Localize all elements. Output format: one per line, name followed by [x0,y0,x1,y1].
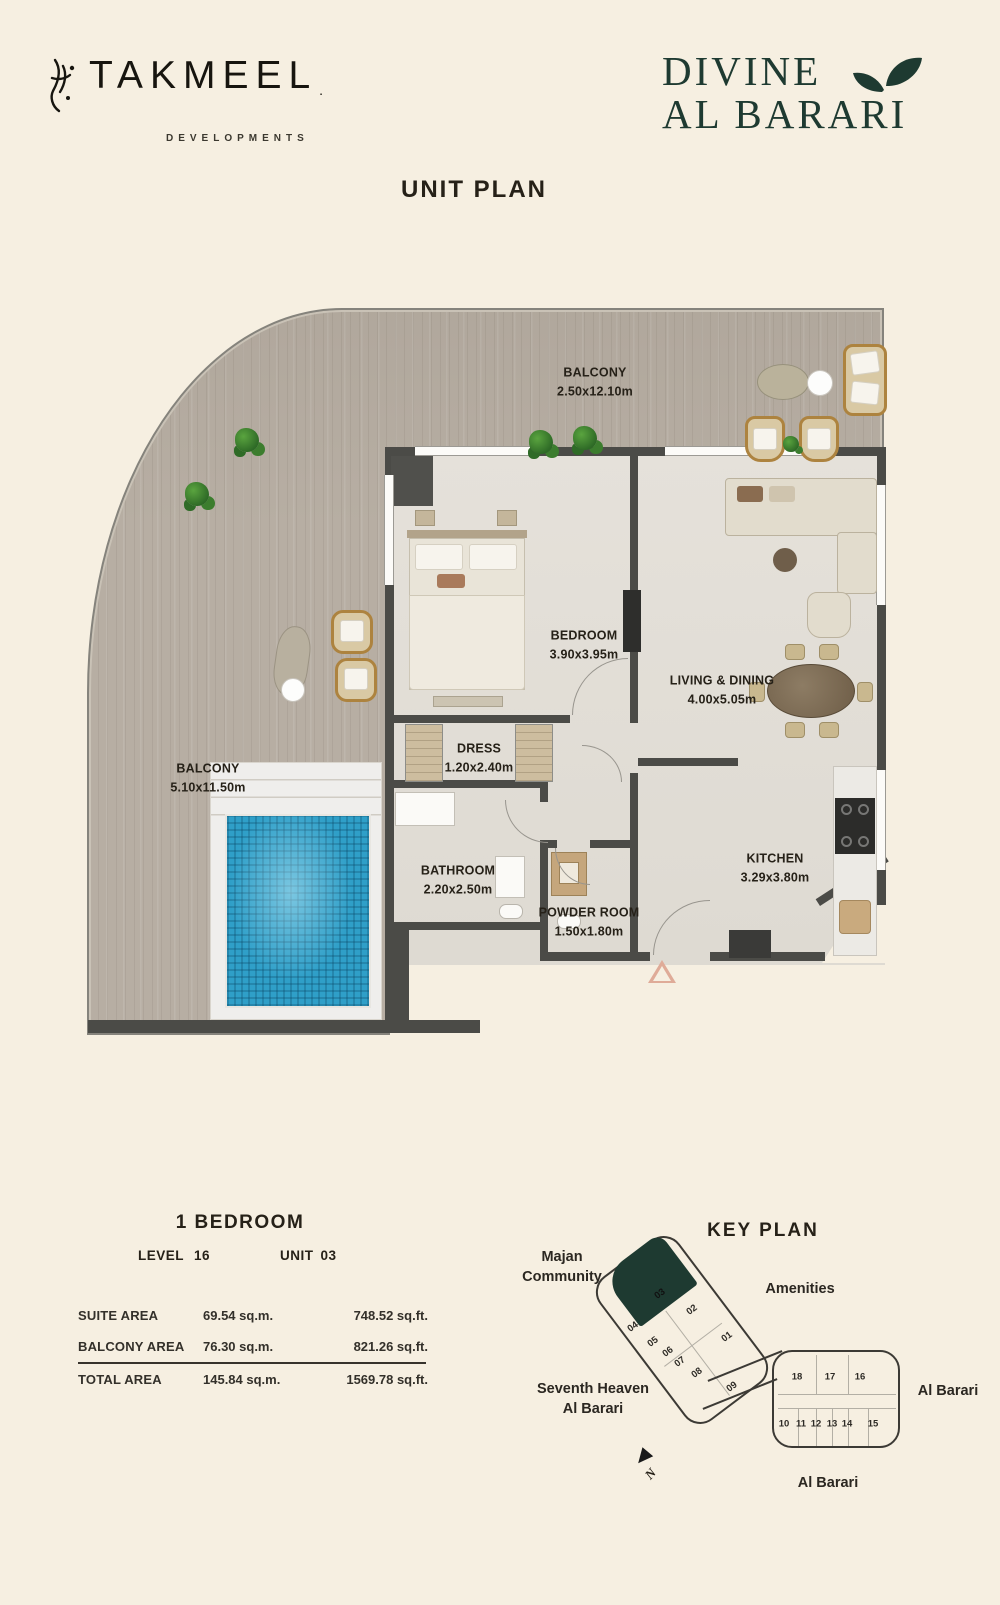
room-name: DRESS [445,739,514,758]
potted-plant [783,436,799,452]
north-label: N [642,1465,660,1483]
stove-burner [841,804,852,815]
room-name: LIVING & DINING [670,671,774,690]
outdoor-pillow [340,620,364,642]
unit-value: 03 [321,1248,337,1263]
key-plan: KEY PLAN Majan Community Amenities Seven… [500,1180,1000,1520]
wall-bedroom-south [385,715,570,723]
room-dims: 2.20x2.50m [421,880,495,899]
potted-plant [573,426,597,450]
brand-suffix: . [319,82,323,98]
wall-bathroom-east [540,780,548,802]
keyplan-inner-line [848,1355,849,1394]
room-label-bathroom: BATHROOM 2.20x2.50m [421,861,495,899]
room-name: POWDER ROOM [539,903,640,922]
area-sqft: 821.26 sq.ft. [313,1339,428,1354]
window-living-east [876,485,886,605]
label-line: Majan [522,1248,602,1268]
room-label-balcony-left: BALCONY 5.10x11.50m [170,759,245,797]
room-label-balcony-top: BALCONY 2.50x12.10m [557,363,633,401]
area-divider [78,1362,426,1364]
wall-bathroom-south [385,922,548,930]
wall-below-bathroom [393,922,409,1033]
keyplan-inner-line [816,1355,817,1394]
window-bedroom-north [415,446,530,456]
swimming-pool [225,814,371,1008]
wall-powder-north-b [590,840,638,848]
label-amenities: Amenities [765,1280,834,1300]
area-sqm: 76.30 sq.m. [203,1339,313,1354]
room-dims: 1.20x2.40m [445,758,514,777]
wall-kitchen-north-stub [638,758,738,766]
bed-headboard [407,530,527,538]
takmeel-logo: TAKMEEL . DEVELOPMENTS [45,56,323,144]
bed-cushion [437,574,465,588]
divine-al-barari-logo: DIVINE AL BARARI [662,50,972,136]
bedroom-closet-block [391,456,433,506]
level-value: 16 [194,1248,210,1263]
potted-plant [185,482,209,506]
area-row-balcony: BALCONY AREA 76.30 sq.m. 821.26 sq.ft. [78,1339,428,1354]
outdoor-pillow [344,668,368,690]
dining-chair [819,722,839,738]
label-line: Community [522,1268,602,1288]
room-name: BATHROOM [421,861,495,880]
project-name-line1: DIVINE [662,48,821,94]
floor-plan: BALCONY 2.50x12.10m BEDROOM 3.90x3.95m L… [85,300,890,1045]
room-dims: 4.00x5.05m [670,690,774,709]
room-label-dress: DRESS 1.20x2.40m [445,739,514,777]
unit-number: UNIT 03 [280,1248,337,1263]
bed-pillow [415,544,463,570]
nightstand [497,510,517,526]
room-dims: 5.10x11.50m [170,778,245,797]
bed-duvet [409,595,525,690]
dining-chair [857,682,873,702]
room-name: BALCONY [557,363,633,382]
outdoor-pillow [753,428,777,450]
unit-number-12: 12 [811,1419,822,1430]
label-seventh-heaven: Seventh Heaven Al Barari [537,1380,649,1419]
room-dims: 3.90x3.95m [550,645,619,664]
room-dims: 3.29x3.80m [741,868,810,887]
dining-chair [819,644,839,660]
toilet [499,904,523,919]
wall-bottom-west [540,952,650,961]
unit-number-11: 11 [796,1419,806,1430]
room-label-powder: POWDER ROOM 1.50x1.80m [539,903,640,941]
room-name: BEDROOM [550,626,619,645]
outdoor-pillow [850,381,880,406]
unit-number-13: 13 [827,1419,838,1430]
entry-arrow-inner [653,966,671,981]
label-line: Al Barari [537,1400,649,1420]
area-sqm: 69.54 sq.m. [203,1308,313,1323]
room-label-bedroom: BEDROOM 3.90x3.95m [550,626,619,664]
takmeel-calligraphy-icon [45,56,81,123]
area-label: SUITE AREA [78,1308,203,1323]
potted-plant [529,430,553,454]
sofa-cushion [737,486,763,502]
keyplan-inner-line [778,1394,896,1395]
area-label: TOTAL AREA [78,1372,203,1387]
sofa-cushion [769,486,795,502]
room-dims: 2.50x12.10m [557,382,633,401]
area-label: BALCONY AREA [78,1339,203,1354]
bathroom-vanity [495,856,525,898]
label-al-barari-bottom: Al Barari [798,1474,858,1494]
shower-tray [395,792,455,826]
area-sqft: 748.52 sq.ft. [313,1308,428,1323]
window-bedroom-balcony [384,475,394,585]
keyplan-inner-line [778,1408,896,1409]
brand-tagline: DEVELOPMENTS [166,133,323,144]
dining-chair [785,722,805,738]
area-sqft: 1569.78 sq.ft. [313,1372,428,1387]
sofa-chaise [837,532,877,594]
wardrobe [405,724,443,782]
potted-plant [235,428,259,452]
stove-burner [858,836,869,847]
dining-table [767,664,855,718]
bed-bench [433,696,503,707]
fridge [729,930,771,958]
bed-pillow [469,544,517,570]
label-majan-community: Majan Community [522,1248,602,1287]
label-al-barari-right: Al Barari [918,1382,978,1402]
armchair [807,592,851,638]
nightstand [415,510,435,526]
outdoor-round-table [281,678,305,702]
dining-chair [785,644,805,660]
unit-number-18: 18 [792,1372,803,1383]
level-label: LEVEL [138,1248,184,1263]
outdoor-coffee-table [757,364,809,400]
unit-type: 1 BEDROOM [176,1212,305,1234]
room-name: KITCHEN [741,849,810,868]
page-title: UNIT PLAN [401,176,547,204]
unit-number-14: 14 [842,1419,853,1430]
keyplan-right-wing [772,1350,900,1448]
kitchen-sink [839,900,871,934]
stove-burner [841,836,852,847]
label-line: Seventh Heaven [537,1380,649,1400]
outdoor-pillow [850,350,881,376]
unit-number-17: 17 [825,1372,836,1383]
room-dims: 1.50x1.80m [539,922,640,941]
side-table [773,548,797,572]
wall-powder-west [540,840,548,960]
area-row-suite: SUITE AREA 69.54 sq.m. 748.52 sq.ft. [78,1308,428,1323]
unit-plan-brochure: { "app": { "background": "#f6efe1", "acc… [0,0,1000,1605]
unit-info: 1 BEDROOM LEVEL 16 UNIT 03 SUITE AREA 69… [60,1200,480,1420]
key-plan-title: KEY PLAN [707,1220,819,1242]
wardrobe [515,724,553,782]
area-row-total: TOTAL AREA 145.84 sq.m. 1569.78 sq.ft. [78,1372,428,1387]
room-label-kitchen: KITCHEN 3.29x3.80m [741,849,810,887]
wall-divider-upper [630,447,638,723]
area-sqm: 145.84 sq.m. [203,1372,313,1387]
wall-balcony-bottom [88,1020,480,1033]
unit-label: UNIT [280,1248,314,1263]
unit-number-15: 15 [868,1419,879,1430]
unit-number-16: 16 [855,1372,866,1383]
room-name: BALCONY [170,759,245,778]
outdoor-pillow [807,428,831,450]
window-kitchen-east [876,770,886,870]
north-arrow-icon [633,1447,653,1467]
room-label-living: LIVING & DINING 4.00x5.05m [670,671,774,709]
tv-unit [623,590,641,652]
leaf-icon [842,52,926,107]
outdoor-round-table [807,370,833,396]
unit-level: LEVEL 16 [138,1248,210,1263]
stove-burner [858,804,869,815]
unit-number-10: 10 [779,1419,790,1430]
brand-name: TAKMEEL [89,56,317,95]
